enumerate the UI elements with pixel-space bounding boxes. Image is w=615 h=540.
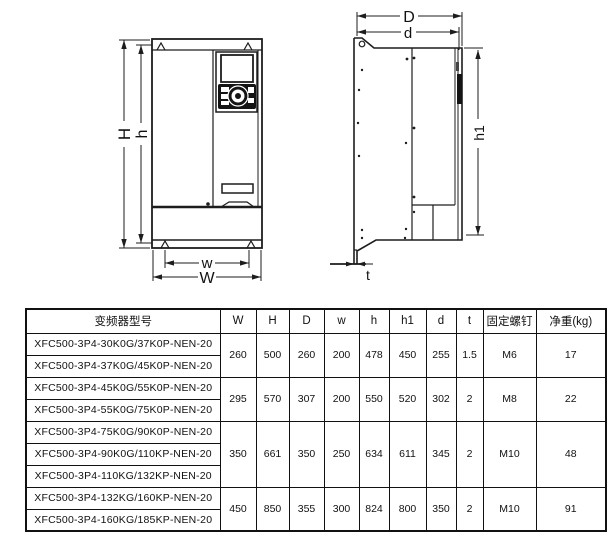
screw-cell: M8 <box>483 377 536 421</box>
dim-W-cell: 350 <box>220 421 256 487</box>
dim-h-cell: 634 <box>359 421 389 487</box>
model-cell: XFC500-3P4-37K0G/45K0P-NEN-20 <box>26 355 220 377</box>
nameplate <box>222 184 253 193</box>
model-cell: XFC500-3P4-90K0G/110KP-NEN-20 <box>26 443 220 465</box>
dim-label-H: H <box>115 128 134 140</box>
header-weight: 净重(kg) <box>536 309 606 333</box>
dim-h1-cell: 611 <box>389 421 426 487</box>
dimensions-table: 变频器型号 W H D w h h1 d t 固定螺钉 净重(kg) XFC50… <box>25 308 607 532</box>
dim-h-cell: 550 <box>359 377 389 421</box>
dim-H-cell: 570 <box>256 377 289 421</box>
dim-t-cell: 2 <box>456 421 483 487</box>
dim-h1-cell: 800 <box>389 487 426 531</box>
header-W: W <box>220 309 256 333</box>
dim-label-h: h <box>134 130 151 139</box>
table-row: XFC500-3P4-30K0G/37K0P-NEN-20 260 500 26… <box>26 333 606 355</box>
model-cell: XFC500-3P4-30K0G/37K0P-NEN-20 <box>26 333 220 355</box>
dim-t-cell: 2 <box>456 377 483 421</box>
side-view-drawing <box>354 38 462 264</box>
keypad-dial <box>218 84 256 109</box>
header-t: t <box>456 309 483 333</box>
table-row: XFC500-3P4-45K0G/55K0P-NEN-20 295 570 30… <box>26 377 606 399</box>
keypad-display <box>221 55 253 82</box>
dim-d-cell: 345 <box>426 421 456 487</box>
screw-cell: M6 <box>483 333 536 377</box>
side-latch <box>457 74 462 104</box>
dim-H-cell: 850 <box>256 487 289 531</box>
dim-H-cell: 500 <box>256 333 289 377</box>
dim-label-h1: h1 <box>471 125 487 141</box>
dim-w-cell: 200 <box>324 377 359 421</box>
dim-d-cell: 350 <box>426 487 456 531</box>
dim-label-D: D <box>403 9 415 26</box>
manual-page: H h w W <box>0 0 615 540</box>
screw-cell: M10 <box>483 421 536 487</box>
header-h: h <box>359 309 389 333</box>
table-header-row: 变频器型号 W H D w h h1 d t 固定螺钉 净重(kg) <box>26 309 606 333</box>
dim-d-cell: 302 <box>426 377 456 421</box>
dim-label-W: W <box>199 270 215 287</box>
screw-cell: M10 <box>483 487 536 531</box>
model-cell: XFC500-3P4-110KG/132KP-NEN-20 <box>26 465 220 487</box>
header-w: w <box>324 309 359 333</box>
dim-W-cell: 450 <box>220 487 256 531</box>
dim-h-cell: 478 <box>359 333 389 377</box>
weight-cell: 91 <box>536 487 606 531</box>
model-cell: XFC500-3P4-132KG/160KP-NEN-20 <box>26 487 220 509</box>
dim-d-cell: 255 <box>426 333 456 377</box>
model-cell: XFC500-3P4-45K0G/55K0P-NEN-20 <box>26 377 220 399</box>
header-model: 变频器型号 <box>26 309 220 333</box>
dim-w-cell: 250 <box>324 421 359 487</box>
weight-cell: 48 <box>536 421 606 487</box>
dim-D-cell: 307 <box>289 377 324 421</box>
dim-label-t: t <box>366 267 370 283</box>
header-D: D <box>289 309 324 333</box>
model-cell: XFC500-3P4-55K0G/75K0P-NEN-20 <box>26 399 220 421</box>
model-cell: XFC500-3P4-75K0G/90K0P-NEN-20 <box>26 421 220 443</box>
dim-label-d: d <box>404 25 412 42</box>
dim-t-cell: 1.5 <box>456 333 483 377</box>
header-screw: 固定螺钉 <box>483 309 536 333</box>
weight-cell: 22 <box>536 377 606 421</box>
header-h1: h1 <box>389 309 426 333</box>
dim-w-cell: 300 <box>324 487 359 531</box>
dim-D-cell: 355 <box>289 487 324 531</box>
model-cell: XFC500-3P4-160KG/185KP-NEN-20 <box>26 509 220 531</box>
dim-w-cell: 200 <box>324 333 359 377</box>
table-row: XFC500-3P4-132KG/160KP-NEN-20 450 850 35… <box>26 487 606 509</box>
technical-drawing: H h w W <box>0 0 615 300</box>
dim-D-cell: 260 <box>289 333 324 377</box>
header-H: H <box>256 309 289 333</box>
dim-h-cell: 824 <box>359 487 389 531</box>
front-view-drawing <box>152 39 262 248</box>
table-row: XFC500-3P4-75K0G/90K0P-NEN-20 350 661 35… <box>26 421 606 443</box>
screw-dots <box>357 57 416 240</box>
dim-t-cell: 2 <box>456 487 483 531</box>
dim-H-cell: 661 <box>256 421 289 487</box>
dim-h1-cell: 520 <box>389 377 426 421</box>
dim-D-cell: 350 <box>289 421 324 487</box>
header-d: d <box>426 309 456 333</box>
weight-cell: 17 <box>536 333 606 377</box>
dim-W-cell: 295 <box>220 377 256 421</box>
dim-h1-cell: 450 <box>389 333 426 377</box>
dim-W-cell: 260 <box>220 333 256 377</box>
